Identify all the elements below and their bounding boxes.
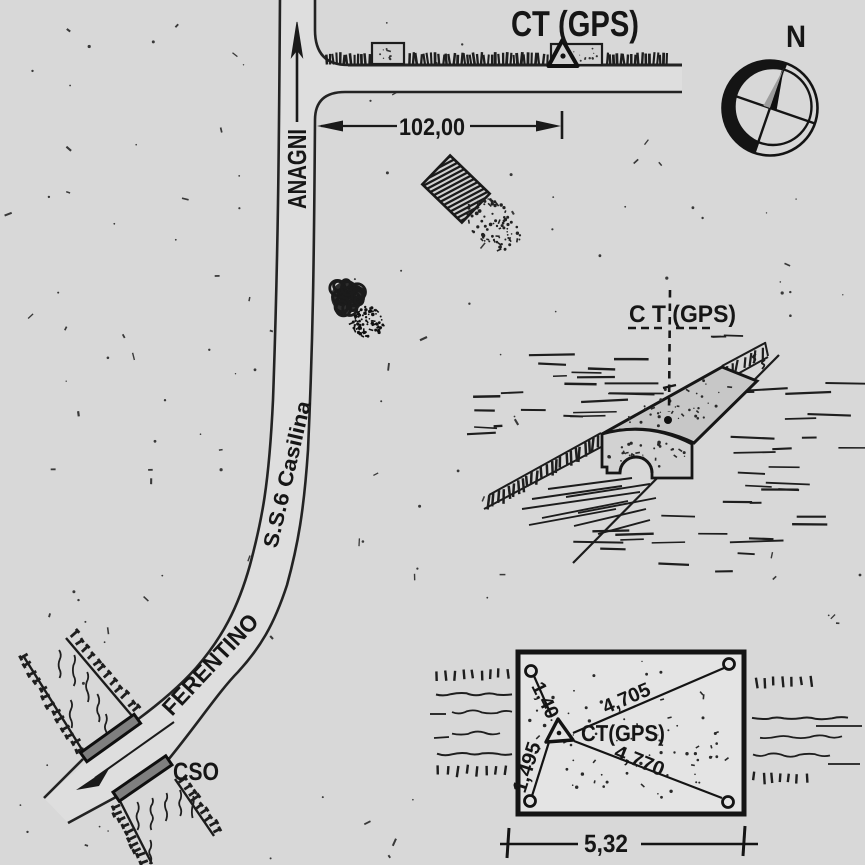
svg-text:CT (GPS): CT (GPS) xyxy=(511,3,639,44)
svg-text:102,00: 102,00 xyxy=(399,114,465,141)
svg-text:CT(GPS): CT(GPS) xyxy=(581,720,665,746)
svg-text:C T (GPS): C T (GPS) xyxy=(629,301,736,328)
svg-text:5,32: 5,32 xyxy=(584,830,628,858)
svg-text:ANAGNI: ANAGNI xyxy=(282,129,312,209)
svg-text:CSO: CSO xyxy=(173,758,219,786)
svg-text:N: N xyxy=(786,19,806,54)
